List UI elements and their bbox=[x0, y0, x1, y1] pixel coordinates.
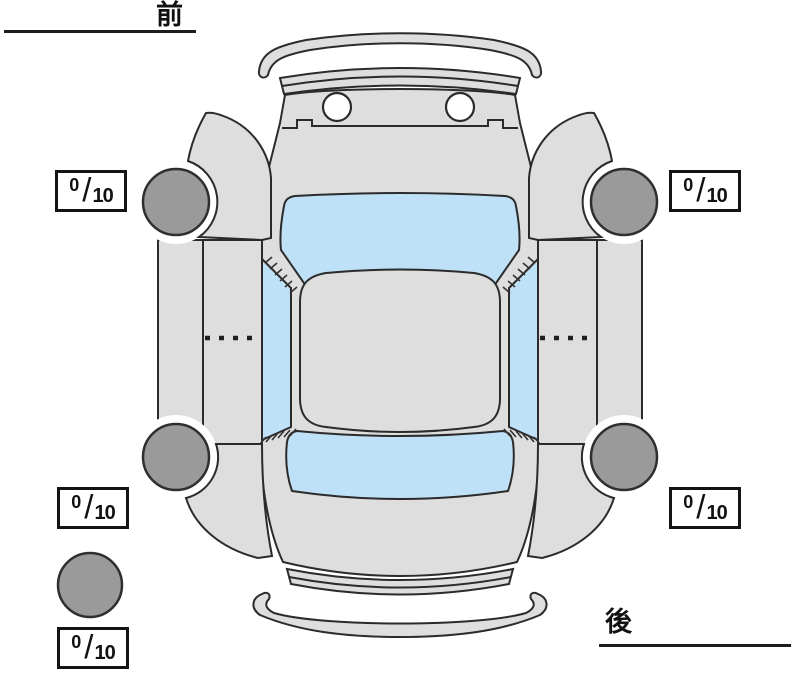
tread-depth-box-rear-left: 0/10 bbox=[57, 487, 129, 529]
tread-depth-box-rear-right: 0/10 bbox=[669, 487, 741, 529]
tread-value: 0 bbox=[683, 175, 693, 196]
tread-max: 10 bbox=[94, 502, 114, 525]
headlight-left bbox=[323, 93, 351, 121]
tread-value: 0 bbox=[71, 492, 81, 513]
tread-max: 10 bbox=[706, 185, 726, 208]
rear-direction-label: 後 bbox=[605, 609, 632, 636]
headlight-right bbox=[446, 93, 474, 121]
tread-value: 0 bbox=[71, 632, 81, 653]
roof-panel bbox=[300, 270, 500, 433]
tire-rear-left bbox=[143, 424, 209, 490]
front-direction-label: 前 bbox=[156, 2, 183, 29]
tread-max: 10 bbox=[92, 185, 112, 208]
front-direction-underline bbox=[4, 30, 196, 33]
tire-spare bbox=[58, 553, 122, 617]
tire-rear-right bbox=[591, 424, 657, 490]
tread-max: 10 bbox=[706, 502, 726, 525]
tread-value: 0 bbox=[683, 492, 693, 513]
tread-depth-box-front-right: 0/10 bbox=[669, 170, 741, 212]
tire-front-left bbox=[143, 169, 209, 235]
tire-front-right bbox=[591, 169, 657, 235]
tread-value: 0 bbox=[69, 175, 79, 196]
car-top-view-diagram bbox=[0, 0, 800, 675]
rear-window bbox=[286, 431, 514, 499]
rear-bumper bbox=[253, 593, 546, 637]
tread-depth-box-spare: 0/10 bbox=[57, 627, 129, 669]
auction-sheet-car-diagram: 前 後 0/10 0/10 0/10 0/10 0/10 bbox=[0, 0, 800, 675]
tread-max: 10 bbox=[94, 642, 114, 665]
rear-direction-underline bbox=[599, 644, 791, 647]
tread-depth-box-front-left: 0/10 bbox=[55, 170, 127, 212]
